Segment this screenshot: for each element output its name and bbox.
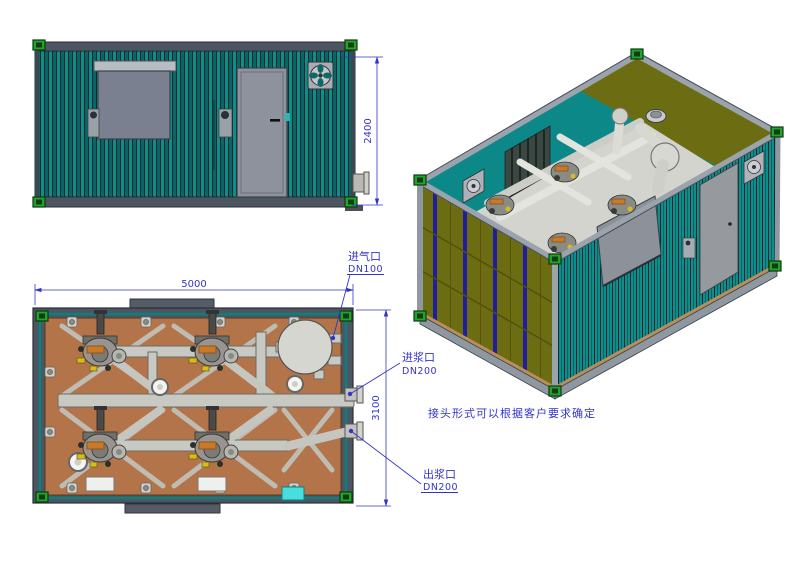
side-elevation-view: 2400 xyxy=(33,40,383,211)
slurry-inlet-stub xyxy=(345,386,363,403)
door-handle xyxy=(270,119,280,122)
iso-door xyxy=(700,163,738,295)
container-door xyxy=(237,68,290,197)
corner-casting xyxy=(631,49,643,59)
corner-casting xyxy=(340,492,352,502)
drawing-svg: 2400 xyxy=(0,0,800,566)
slurry-outlet-stub xyxy=(345,422,363,440)
corner-casting xyxy=(414,175,426,185)
top-rail xyxy=(35,42,355,51)
control-box xyxy=(282,487,304,500)
exhaust-fan-icon xyxy=(308,62,333,89)
main-slurry-pipe xyxy=(58,394,354,407)
bottom-handle xyxy=(125,504,220,513)
slurry-outlet-size: DN200 xyxy=(423,482,458,493)
width-dimension: 3100 xyxy=(356,310,391,506)
slurry-inlet-label: 进浆口 xyxy=(402,350,435,364)
door-hinge xyxy=(285,113,290,121)
air-inlet-size: DN100 xyxy=(348,264,383,275)
slurry-outlet-label: 出浆口 xyxy=(423,467,456,481)
top-handle xyxy=(130,299,214,308)
top-plan-view: 5000 3100 xyxy=(33,279,391,513)
dim-length-text: 5000 xyxy=(181,279,206,290)
corner-casting xyxy=(414,311,426,321)
corner-casting xyxy=(345,40,357,50)
corner-casting xyxy=(549,386,561,396)
dim-width-text: 3100 xyxy=(371,395,382,420)
corner-casting xyxy=(771,127,783,137)
corner-post xyxy=(777,133,778,271)
container-side-wall xyxy=(35,50,355,198)
iso-latch xyxy=(683,238,695,258)
dim-height-text: 2400 xyxy=(363,118,374,143)
window-panel xyxy=(98,71,170,139)
slurry-outlet-callout: 出浆口 DN200 xyxy=(349,429,458,493)
corner-casting xyxy=(549,254,561,264)
corner-casting xyxy=(36,492,48,502)
isometric-3d-view xyxy=(414,49,783,399)
side-pipe-stub xyxy=(353,172,369,194)
corner-casting xyxy=(340,311,352,321)
corner-casting xyxy=(769,261,781,271)
corner-casting xyxy=(36,311,48,321)
corner-casting xyxy=(345,197,357,207)
left-post xyxy=(35,50,39,198)
pump-base-plate xyxy=(198,477,226,491)
corner-casting xyxy=(33,197,45,207)
corner-casting xyxy=(33,40,45,50)
slurry-inlet-size: DN200 xyxy=(402,366,437,377)
pump-base-plate xyxy=(86,477,114,491)
interior-round-vent xyxy=(646,110,666,123)
window-header xyxy=(94,61,176,71)
air-inlet-label: 进气口 xyxy=(348,249,381,263)
window-latch-left xyxy=(88,109,99,137)
iso-door-handle xyxy=(728,222,732,226)
connector-note: 接头形式可以根据客户要求确定 xyxy=(428,406,596,420)
bottom-rail xyxy=(35,197,355,207)
cad-drawing-sheet: 2400 xyxy=(0,0,800,566)
